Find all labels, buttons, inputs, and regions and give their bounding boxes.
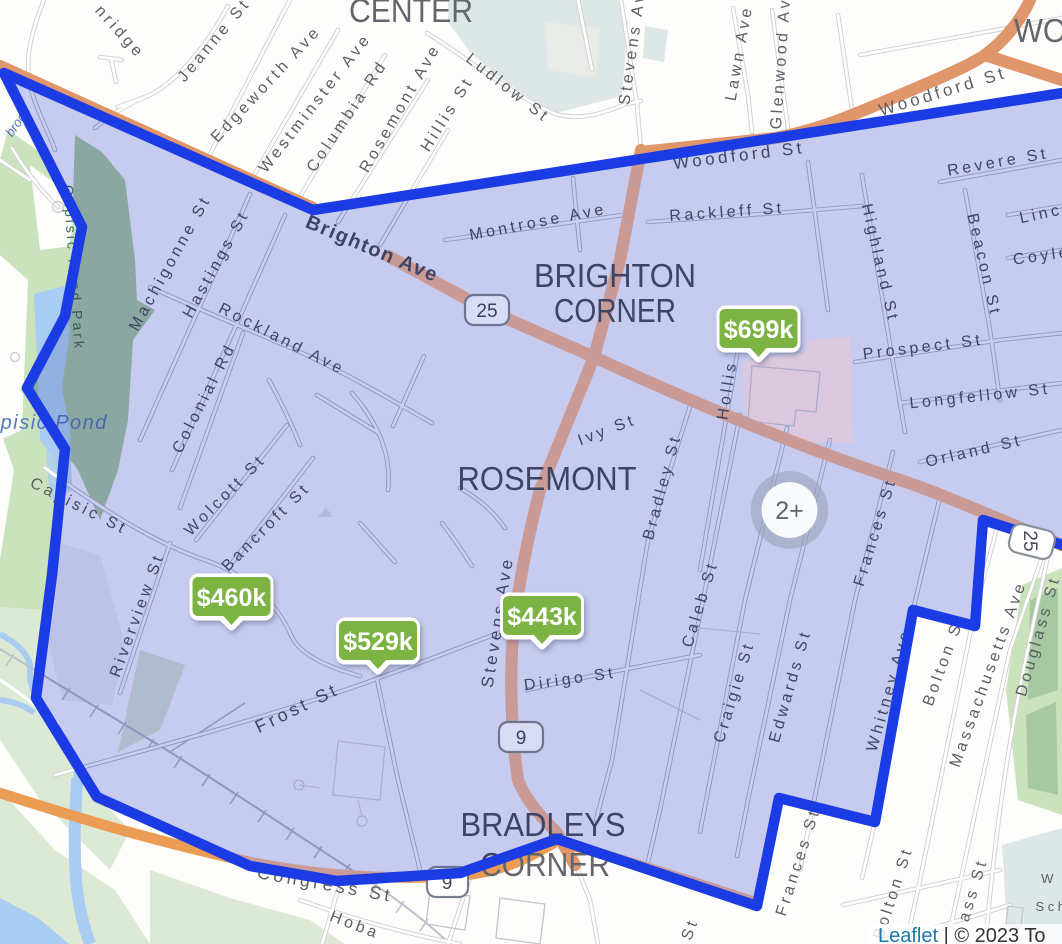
svg-text:$699k: $699k	[724, 316, 794, 344]
svg-text:2+: 2+	[775, 497, 804, 525]
svg-text:Leaflet | © 2023 To: Leaflet | © 2023 To	[878, 925, 1045, 944]
svg-text:$529k: $529k	[343, 628, 413, 656]
svg-text:$460k: $460k	[197, 584, 267, 612]
svg-text:$443k: $443k	[507, 603, 577, 631]
svg-text:25: 25	[1019, 530, 1040, 551]
